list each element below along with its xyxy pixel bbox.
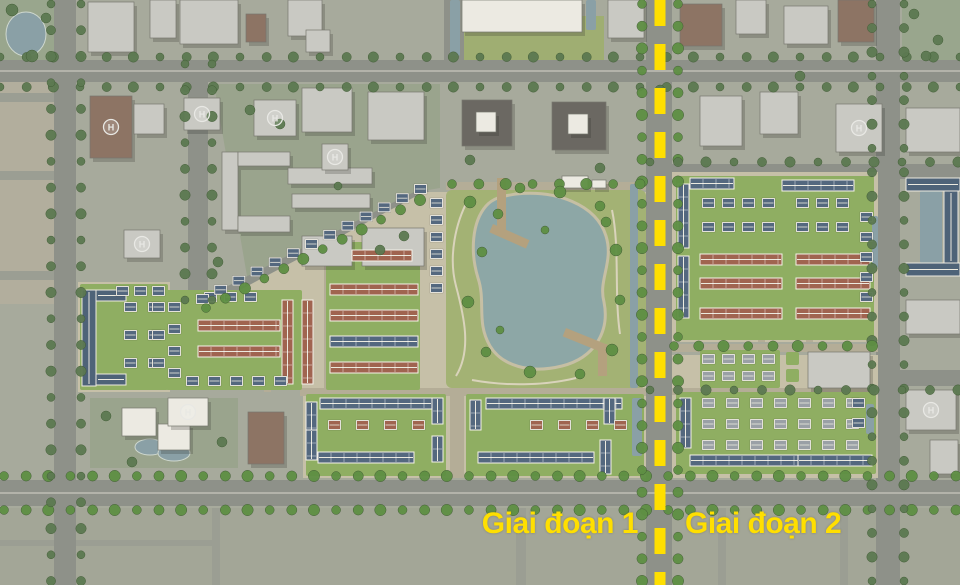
tree-icon [337, 234, 347, 244]
context-building [134, 104, 164, 134]
tree-icon [818, 471, 828, 481]
faint-road [0, 540, 212, 546]
tree-icon [236, 53, 244, 61]
tree-icon [581, 178, 592, 189]
context-building [906, 300, 960, 334]
helipad-icon: H [332, 152, 339, 162]
tree-icon [742, 82, 751, 91]
tree-icon [921, 51, 931, 61]
tree-icon [863, 472, 872, 481]
tree-icon [528, 52, 538, 62]
tree-icon [673, 21, 683, 31]
tree-icon [868, 361, 876, 369]
tree-icon [867, 168, 876, 177]
tree-icon [6, 4, 18, 16]
tree-icon [672, 242, 683, 253]
context-building [150, 0, 176, 38]
tree-icon [785, 157, 795, 167]
tree-icon [716, 53, 724, 61]
tree-icon [464, 472, 473, 481]
context-building [700, 96, 742, 146]
tree-icon [508, 470, 519, 481]
tree-icon [796, 53, 804, 61]
tree-icon [867, 552, 877, 562]
tree-icon [154, 505, 164, 515]
tree-icon [929, 472, 938, 481]
tree-icon [102, 82, 111, 91]
tree-icon [486, 471, 496, 481]
tree-icon [899, 312, 908, 321]
tree-icon [646, 386, 654, 394]
tree-icon [752, 471, 762, 481]
context-building [808, 352, 870, 388]
tree-icon [46, 209, 56, 219]
tree-icon [933, 35, 943, 45]
tree-icon [76, 209, 86, 219]
tree-icon [180, 190, 190, 200]
tree-icon [76, 262, 85, 271]
tree-icon [76, 130, 86, 140]
tree-icon [46, 262, 55, 271]
tree-icon [867, 191, 877, 201]
tree-icon [242, 504, 253, 515]
tree-icon [208, 139, 216, 147]
tree-icon [76, 576, 85, 585]
tree-icon [730, 158, 738, 166]
tree-icon [102, 52, 111, 61]
tree-icon [396, 83, 404, 91]
tree-icon [332, 506, 341, 515]
tree-icon [128, 82, 138, 92]
tree-icon [260, 274, 269, 283]
tree-icon [220, 505, 230, 515]
tree-icon [884, 471, 894, 481]
tree-icon [22, 82, 31, 91]
tree-icon [207, 164, 216, 173]
tree-icon [353, 471, 363, 481]
tree-icon [76, 340, 85, 349]
tree-icon [636, 242, 647, 253]
tree-icon [493, 209, 503, 219]
tree-icon [465, 155, 475, 165]
tree-icon [792, 340, 803, 351]
tree-icon [701, 385, 711, 395]
tree-icon [239, 283, 250, 294]
tree-icon [814, 158, 822, 166]
context-building [368, 92, 424, 140]
tree-icon [262, 52, 271, 61]
tree-icon [868, 216, 876, 224]
tree-icon [609, 180, 618, 189]
tree-icon [597, 472, 606, 481]
tree-icon [899, 96, 908, 105]
tree-icon [77, 393, 85, 401]
tree-icon [477, 247, 487, 257]
tree-icon [175, 504, 186, 515]
tree-icon [175, 470, 186, 481]
tree-icon [899, 191, 909, 201]
tree-icon [77, 472, 85, 480]
tree-icon [925, 157, 934, 166]
canal [630, 184, 638, 388]
tree-icon [308, 470, 319, 481]
tree-icon [395, 205, 405, 215]
tree-icon [47, 315, 55, 323]
tree-icon [730, 386, 738, 394]
tree-icon [899, 263, 909, 273]
helipad-icon: H [856, 123, 863, 133]
tree-icon [298, 253, 309, 264]
tree-icon [76, 183, 85, 192]
tree-icon [637, 154, 647, 164]
tree-icon [876, 83, 884, 91]
tree-icon [448, 180, 457, 189]
faint-road [0, 93, 56, 102]
tree-icon [899, 408, 909, 418]
tree-icon [899, 552, 909, 562]
tree-icon [842, 341, 852, 351]
tree-icon [636, 575, 647, 585]
tree-icon [638, 332, 647, 341]
tree-icon [46, 183, 55, 192]
tree-icon [868, 505, 876, 513]
tree-icon [199, 472, 208, 481]
canal [450, 0, 460, 56]
helipad-icon: H [185, 407, 192, 417]
tree-icon [638, 399, 647, 408]
tree-icon [868, 577, 876, 585]
tree-icon [730, 472, 739, 481]
tree-icon [476, 83, 484, 91]
tree-icon [900, 361, 908, 369]
tree-icon [646, 158, 654, 166]
tree-icon [900, 0, 908, 8]
tree-icon [46, 523, 56, 533]
tree-icon [308, 504, 319, 515]
phase2-label: Giai đoạn 2 [685, 509, 841, 539]
tree-icon [636, 43, 647, 54]
tree-icon [476, 53, 484, 61]
tree-icon [867, 240, 876, 249]
tree-icon [848, 52, 858, 62]
tree-icon [420, 471, 430, 481]
tree-icon [420, 505, 430, 515]
tree-icon [638, 133, 647, 142]
tree-icon [840, 470, 851, 481]
tree-icon [610, 244, 622, 256]
tree-icon [694, 341, 704, 351]
tree-icon [46, 366, 56, 376]
tree-icon [899, 456, 908, 465]
tree-icon [76, 287, 86, 297]
tree-icon [132, 472, 141, 481]
tree-icon [899, 119, 909, 129]
context-building [222, 152, 238, 230]
tree-icon [673, 88, 683, 98]
tree-icon [199, 506, 208, 515]
tree-icon [768, 82, 778, 92]
tree-icon [716, 83, 724, 91]
tree-icon [464, 196, 476, 208]
tree-icon [101, 411, 111, 421]
tree-icon [898, 386, 906, 394]
tree-icon [638, 199, 647, 208]
tree-icon [318, 245, 327, 254]
tree-icon [814, 386, 822, 394]
tree-icon [342, 52, 351, 61]
tree-icon [636, 509, 647, 520]
tree-icon [217, 437, 227, 447]
tree-icon [356, 224, 367, 235]
tree-icon [180, 86, 189, 95]
tree-icon [316, 53, 324, 61]
tree-icon [797, 472, 806, 481]
tree-icon [77, 157, 85, 165]
tree-icon [637, 487, 647, 497]
tree-icon [841, 385, 850, 394]
tree-icon [637, 554, 647, 564]
tree-icon [500, 178, 511, 189]
tree-icon [47, 79, 55, 87]
tree-icon [502, 82, 511, 91]
tree-icon [46, 445, 56, 455]
context-building [592, 180, 606, 188]
tree-icon [900, 577, 908, 585]
tree-icon [867, 408, 877, 418]
tree-icon [46, 130, 56, 140]
tree-icon [673, 221, 683, 231]
tree-icon [638, 66, 647, 75]
tree-icon [396, 53, 404, 61]
tree-icon [840, 504, 851, 515]
tree-icon [220, 471, 230, 481]
tree-icon [47, 551, 55, 559]
tree-icon [334, 182, 342, 190]
tree-icon [265, 472, 274, 481]
tree-icon [46, 576, 55, 585]
tree-icon [502, 52, 511, 61]
tree-icon [575, 369, 585, 379]
tree-icon [638, 532, 647, 541]
tree-icon [528, 82, 538, 92]
tree-icon [574, 470, 585, 481]
tree-icon [866, 340, 877, 351]
tree-icon [718, 340, 729, 351]
tree-icon [47, 472, 55, 480]
tree-icon [899, 480, 909, 490]
tree-icon [796, 83, 804, 91]
context-building [568, 114, 588, 134]
tree-icon [701, 157, 711, 167]
tree-icon [422, 82, 431, 91]
tree-icon [707, 470, 718, 481]
tree-icon [818, 342, 827, 351]
tree-icon [768, 341, 778, 351]
canal [586, 0, 596, 30]
tree-icon [637, 88, 647, 98]
tree-icon [0, 506, 9, 515]
tree-icon [867, 528, 876, 537]
context-building [180, 0, 238, 44]
tree-icon [867, 456, 876, 465]
faint-road [0, 271, 56, 280]
tree-icon [688, 82, 698, 92]
tree-icon [375, 245, 385, 255]
helipad-icon: H [272, 113, 279, 123]
tree-icon [637, 421, 647, 431]
tree-icon [77, 79, 85, 87]
faint-road [0, 171, 56, 180]
tree-icon [414, 194, 425, 205]
tree-icon [353, 505, 363, 515]
tree-icon [902, 82, 911, 91]
road-center-line [0, 492, 960, 494]
tree-icon [481, 347, 491, 357]
tree-icon [595, 201, 605, 211]
tree-icon [673, 287, 683, 297]
tree-icon [368, 52, 378, 62]
tree-icon [951, 505, 960, 515]
tree-icon [899, 47, 909, 57]
tree-icon [867, 312, 876, 321]
tree-icon [899, 335, 909, 345]
tree-icon [399, 231, 409, 241]
tree-icon [876, 53, 884, 61]
tree-icon [674, 466, 683, 475]
tree-icon [156, 53, 164, 61]
tree-icon [207, 269, 217, 279]
tree-icon [26, 50, 38, 62]
layer-lake-park [446, 178, 646, 388]
masterplan-map: HHHHHHHH Giai đoạn 1 Giai đoạn 2 [0, 0, 960, 585]
tree-icon [867, 119, 877, 129]
tree-icon [672, 309, 683, 320]
tree-icon [181, 217, 189, 225]
tree-icon [515, 183, 525, 193]
tree-icon [673, 157, 682, 166]
tree-icon [757, 157, 766, 166]
context-building [736, 0, 766, 34]
tree-icon [76, 445, 86, 455]
tree-icon [180, 111, 190, 121]
tree-icon [76, 51, 86, 61]
canal [920, 191, 942, 263]
tree-icon [342, 82, 351, 91]
tree-icon [208, 217, 216, 225]
tree-icon [619, 471, 629, 481]
tree-icon [128, 52, 138, 62]
tree-icon [220, 293, 230, 303]
tree-icon [46, 104, 55, 113]
tree-icon [375, 504, 386, 515]
tree-icon [236, 83, 244, 91]
tree-icon [474, 179, 484, 189]
context-building [760, 92, 798, 134]
minor-road [450, 392, 464, 478]
tree-icon [66, 506, 75, 515]
tree-icon [664, 472, 673, 481]
tree-icon [637, 354, 647, 364]
tree-icon [127, 457, 137, 467]
context-building [88, 2, 134, 52]
tree-icon [848, 82, 858, 92]
tree-icon [638, 266, 647, 275]
tree-icon [685, 471, 695, 481]
tree-icon [925, 385, 934, 394]
tree-icon [867, 23, 876, 32]
tree-icon [868, 433, 876, 441]
tree-icon [47, 393, 55, 401]
tree-icon [674, 266, 683, 275]
context-building [680, 4, 722, 46]
tree-icon [899, 528, 908, 537]
tree-icon [742, 52, 751, 61]
tree-icon [66, 472, 75, 481]
tree-icon [448, 52, 458, 62]
tree-icon [76, 498, 85, 507]
tree-icon [638, 0, 647, 9]
tree-icon [441, 470, 452, 481]
tree-icon [46, 419, 55, 428]
tree-icon [672, 575, 683, 585]
tree-icon [202, 304, 211, 313]
tree-icon [531, 472, 540, 481]
tree-icon [77, 0, 85, 8]
pool [6, 12, 46, 56]
tree-icon [496, 326, 504, 334]
tree-icon [674, 399, 683, 408]
tree-icon [398, 472, 407, 481]
tree-icon [375, 470, 386, 481]
tree-icon [109, 504, 120, 515]
context-building [306, 30, 330, 52]
tree-icon [287, 505, 297, 515]
tree-icon [524, 366, 536, 378]
tree-icon [180, 164, 189, 173]
tree-icon [673, 487, 683, 497]
context-building [462, 0, 582, 32]
helipad-icon: H [928, 405, 935, 415]
tree-icon [900, 216, 908, 224]
tree-icon [208, 60, 216, 68]
tree-icon [898, 158, 906, 166]
tree-icon [615, 295, 625, 305]
tree-icon [757, 385, 766, 394]
tree-icon [181, 60, 189, 68]
tree-icon [636, 442, 647, 453]
tree-icon [207, 243, 216, 252]
tree-icon [287, 471, 297, 481]
tree-icon [672, 43, 683, 54]
tree-icon [674, 532, 683, 541]
tree-icon [672, 509, 683, 520]
tree-icon [207, 190, 217, 200]
tree-icon [899, 23, 908, 32]
tree-icon [46, 26, 55, 35]
context-building [906, 108, 960, 152]
context-building [930, 440, 958, 474]
tree-icon [867, 480, 877, 490]
tree-icon [867, 96, 876, 105]
tree-icon [462, 296, 474, 308]
tree-icon [773, 470, 784, 481]
tree-icon [951, 471, 960, 481]
tree-icon [673, 385, 682, 394]
tree-icon [316, 83, 324, 91]
lawn [786, 352, 799, 365]
tree-icon [87, 471, 97, 481]
tree-icon [76, 419, 85, 428]
